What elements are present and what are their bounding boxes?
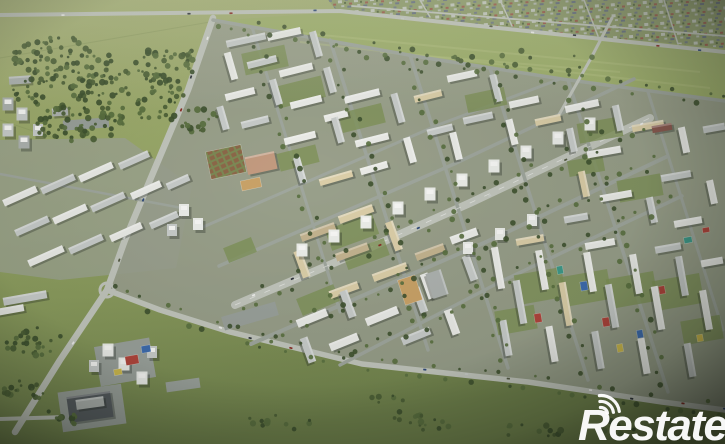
- masterplan-scene: Restate: [0, 0, 725, 444]
- restate-watermark-logo: Restate: [578, 396, 725, 444]
- vignette-overlay: [0, 0, 725, 444]
- masterplan-aerial-render: Restate: [0, 0, 725, 444]
- watermark-text: Restate: [578, 401, 725, 444]
